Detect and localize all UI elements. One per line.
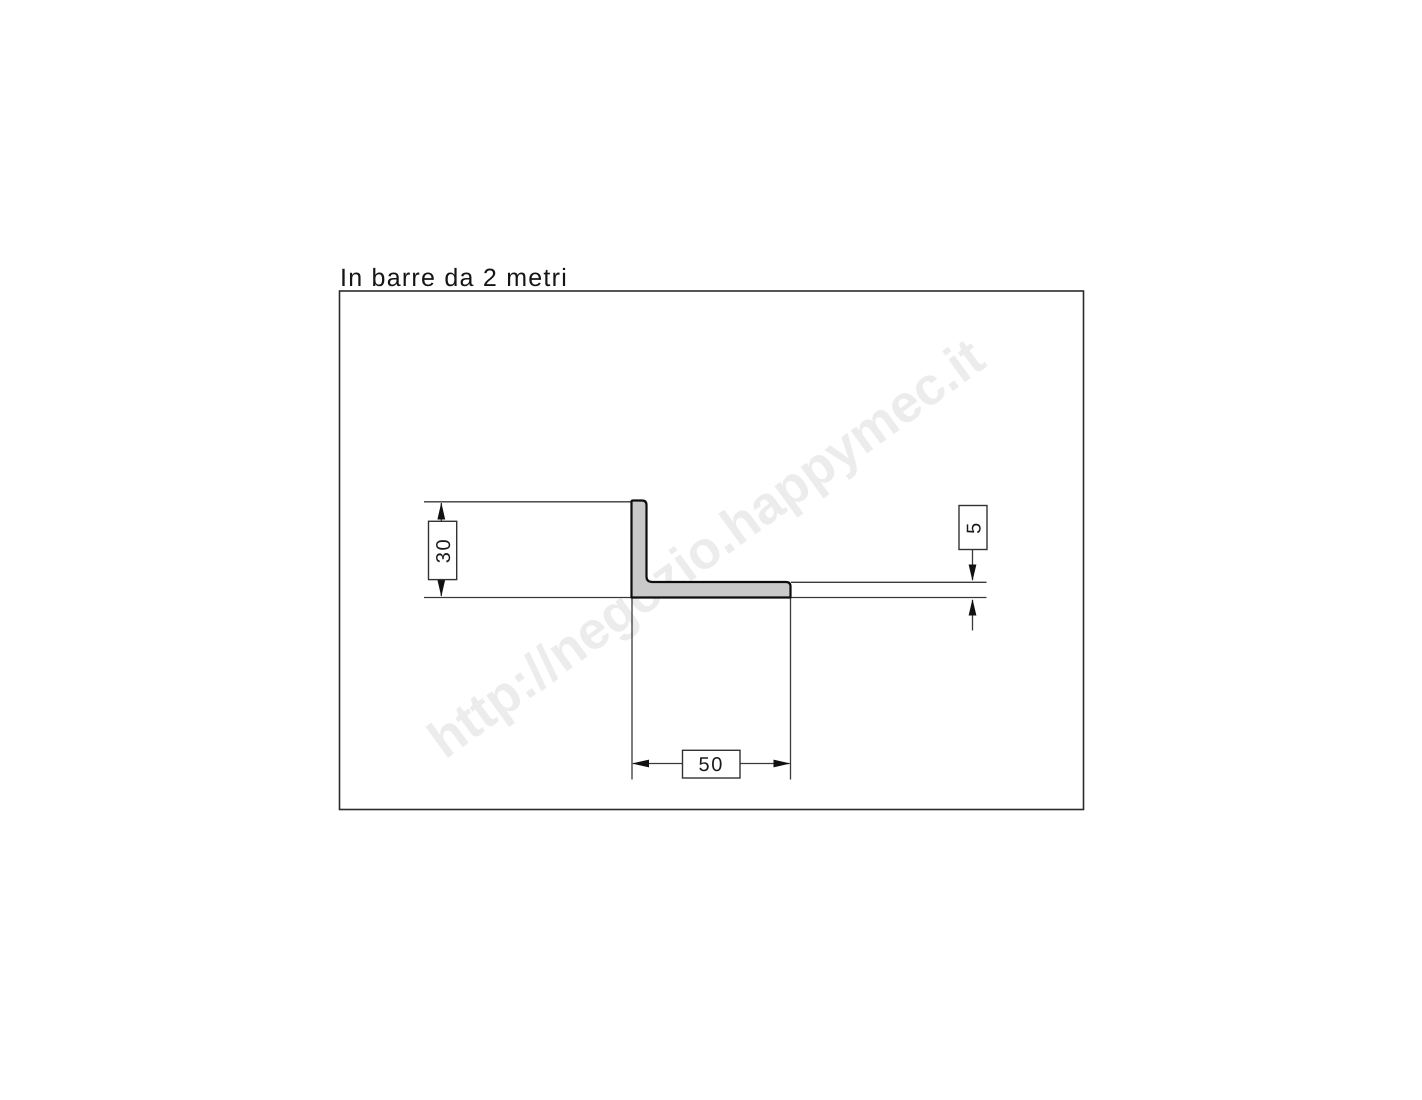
- svg-text:30: 30: [433, 538, 455, 563]
- svg-text:50: 50: [698, 754, 723, 776]
- svg-text:In barre da 2 metri: In barre da 2 metri: [340, 264, 568, 292]
- svg-text:5: 5: [964, 521, 986, 534]
